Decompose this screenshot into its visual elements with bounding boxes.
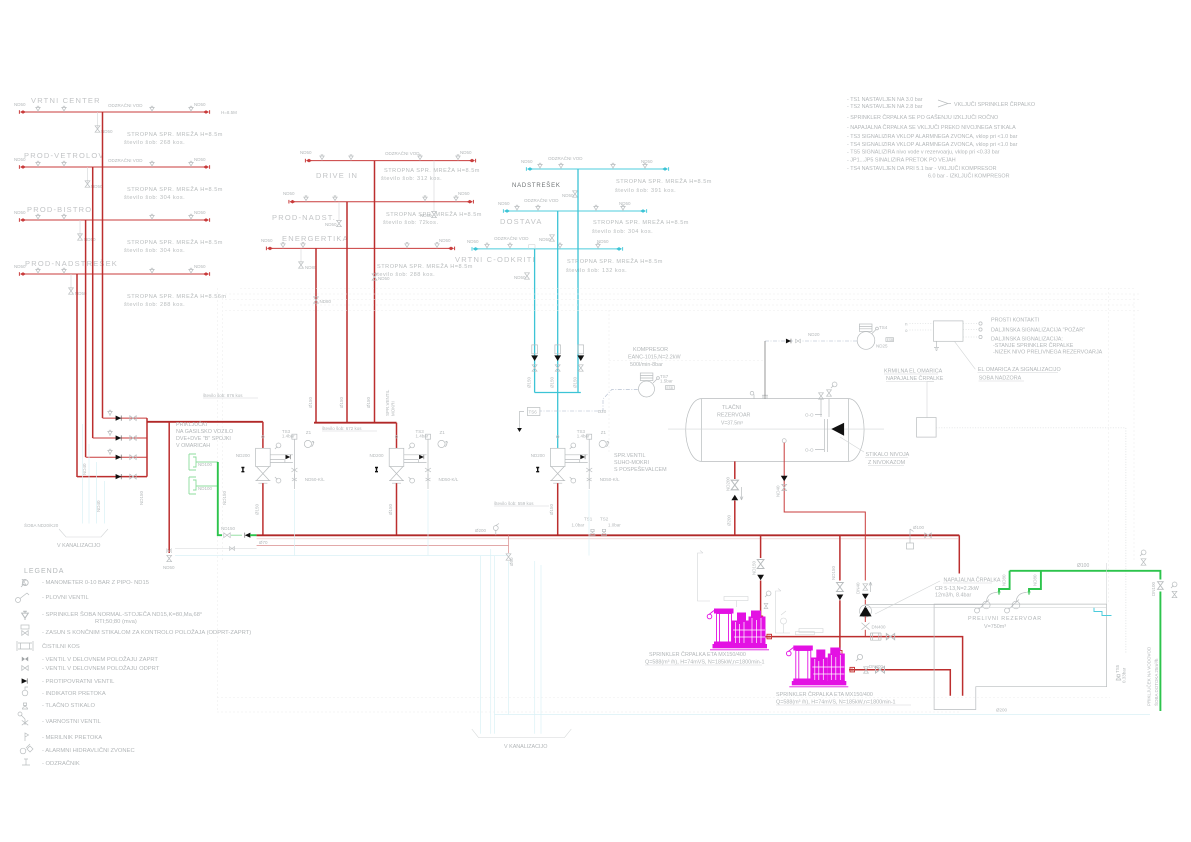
svg-text:ND100: ND100 (198, 462, 213, 467)
svg-text:TS4: TS4 (879, 325, 888, 330)
svg-text:PRELIVNI REZERVOAR: PRELIVNI REZERVOAR (968, 616, 1042, 622)
svg-text:DN400: DN400 (872, 625, 887, 630)
svg-text:ND40: ND40 (82, 463, 87, 475)
svg-text:- TS5 SIGNALIZIRA nivo vode v: - TS5 SIGNALIZIRA nivo vode v rezervoarj… (847, 150, 1000, 156)
svg-text:LEGENDA: LEGENDA (24, 568, 64, 575)
svg-text:število šob: 132 kos.: število šob: 132 kos. (566, 268, 627, 274)
svg-text:število šob: 268 kos.: število šob: 268 kos. (124, 140, 185, 146)
svg-text:ND80: ND80 (1002, 574, 1007, 586)
svg-text:ND150: ND150 (222, 490, 227, 505)
svg-text:DRIVE IN: DRIVE IN (316, 171, 358, 180)
svg-text:ND50: ND50 (521, 159, 533, 164)
svg-text:KOMPRESOR: KOMPRESOR (633, 347, 668, 353)
svg-text:ENERGERTIKA: ENERGERTIKA (282, 234, 349, 243)
svg-text:ND150: ND150 (831, 565, 836, 580)
svg-text:1.5bar: 1.5bar (660, 379, 673, 384)
svg-text:- VENTIL V DELOVNEM POLOŽAJU Z: - VENTIL V DELOVNEM POLOŽAJU ZAPRT (42, 655, 158, 663)
svg-text:RTI;50;80 (mva): RTI;50;80 (mva) (95, 619, 137, 625)
svg-text:ND50: ND50 (619, 201, 631, 206)
svg-text:Ø150: Ø150 (366, 396, 371, 408)
svg-text:DALJINSKA SIGNALIZACIJA "POŽAR: DALJINSKA SIGNALIZACIJA "POŽAR" (991, 326, 1085, 334)
svg-text:TS1: TS1 (584, 517, 593, 522)
svg-text:SPRINKLER ČRPALKA ETA MX150/40: SPRINKLER ČRPALKA ETA MX150/400 (649, 651, 746, 658)
svg-text:Ø100: Ø100 (913, 525, 925, 530)
svg-text:Ø150: Ø150 (573, 376, 578, 388)
svg-text:STROPNA SPR. MREŽA H=8.5m: STROPNA SPR. MREŽA H=8.5m (593, 218, 689, 226)
svg-text:STROPNA SPR. MREŽA H=8.5m: STROPNA SPR. MREŽA H=8.5m (616, 177, 712, 185)
svg-text:Ø150: Ø150 (388, 503, 393, 515)
svg-text:število šob: 672 kos: število šob: 672 kos (322, 426, 362, 431)
svg-text:- TLAČNO STIKALO: - TLAČNO STIKALO (42, 702, 96, 709)
svg-text:- TS4 NASTAVLJEN DA PRI 5.1 ba: - TS4 NASTAVLJEN DA PRI 5.1 bar - VKLJUČ… (847, 165, 997, 172)
svg-text:SUHO-MOKRI: SUHO-MOKRI (614, 460, 649, 466)
svg-text:ND50: ND50 (14, 157, 26, 162)
svg-text:H=8.5M: H=8.5M (221, 110, 237, 115)
svg-text:Ø200: Ø200 (727, 514, 732, 526)
svg-text:ODZRAČNI VOD: ODZRAČNI VOD (108, 157, 143, 163)
svg-text:S POSPEŠEVALCEM: S POSPEŠEVALCEM (614, 466, 667, 473)
svg-text:- SPRINKLER ČRPALKA SE PO GAŠE: - SPRINKLER ČRPALKA SE PO GAŠENJU IZKLJU… (847, 114, 998, 121)
svg-text:Ø150: Ø150 (549, 503, 554, 515)
svg-text:ND50: ND50 (14, 210, 26, 215)
svg-text:Ø100: Ø100 (1077, 563, 1089, 569)
svg-text:ODZRAČNI VOD: ODZRAČNI VOD (524, 197, 559, 203)
svg-text:ND40: ND40 (96, 500, 101, 512)
svg-text:- NAPAJALNA ČRPALKA SE VKLJUČI: - NAPAJALNA ČRPALKA SE VKLJUČI PREKO NIV… (847, 124, 1016, 131)
svg-text:- ODZRAČNIK: - ODZRAČNIK (42, 760, 80, 767)
svg-text:število šob: 304 kos.: število šob: 304 kos. (124, 195, 185, 201)
svg-text:V=37.5m³: V=37.5m³ (721, 421, 743, 427)
svg-text:[M]: [M] (166, 548, 172, 553)
svg-text:6.0 bar - IZKLJUČI KOMPRESOR: 6.0 bar - IZKLJUČI KOMPRESOR (928, 173, 1010, 180)
svg-text:NA GASILSKO VOZILO: NA GASILSKO VOZILO (176, 429, 233, 435)
svg-text:- MERILNIK PRETOKA: - MERILNIK PRETOKA (42, 735, 102, 741)
svg-text:CR 5-13,N=2.2kW: CR 5-13,N=2.2kW (935, 586, 980, 592)
svg-text:ND50: ND50 (562, 193, 574, 198)
svg-text:ND50: ND50 (14, 264, 26, 269)
svg-text:PRIKLJUČEK NA VODOVOD: PRIKLJUČEK NA VODOVOD (1146, 646, 1152, 706)
svg-text:SPRINKLER ČRPALKA ETA MX150/40: SPRINKLER ČRPALKA ETA MX150/400 (776, 691, 873, 698)
svg-text:NAPAJALNE ČRPALKE: NAPAJALNE ČRPALKE (886, 375, 944, 382)
svg-text:ND50: ND50 (14, 102, 26, 107)
svg-text:O-O: O-O (805, 413, 814, 418)
svg-text:Q=588(m³ /h), H=74mVS, N=185: Q=588(m³ /h), H=74mVS, N=185kW,n=1800min… (776, 700, 896, 706)
svg-text:- MANOMETER 0-10 BAR Z PIPO- N: - MANOMETER 0-10 BAR Z PIPO- ND15 (42, 580, 149, 586)
svg-text:STROPNA SPR. MREŽA H=8.5m: STROPNA SPR. MREŽA H=8.5m (386, 210, 482, 218)
svg-text:- ZASUN S KONČNIM STIKALOM ZA: - ZASUN S KONČNIM STIKALOM ZA KONTROLO P… (42, 628, 251, 636)
svg-text:V OMARICAH: V OMARICAH (176, 443, 210, 449)
svg-text:-NIZEK NIVO PRELIVNEGA REZERVO: -NIZEK NIVO PRELIVNEGA REZERVOARJA (993, 350, 1103, 356)
svg-text:1.0bar: 1.0bar (608, 523, 621, 528)
svg-text:Ø50: Ø50 (509, 557, 514, 566)
svg-text:ODZRAČNI VOD: ODZRAČNI VOD (385, 150, 420, 156)
svg-text:- VENTIL V DELOVNEM POLOŽAJU O: - VENTIL V DELOVNEM POLOŽAJU ODPRT (42, 664, 160, 672)
svg-text:PROD-NADSTREŠEK: PROD-NADSTREŠEK (25, 259, 118, 268)
svg-text:Ø150: Ø150 (308, 396, 313, 408)
svg-text:ND80: ND80 (1033, 574, 1038, 586)
svg-text:PROD-NADST.: PROD-NADST. (272, 213, 336, 222)
svg-text:ND50: ND50 (194, 102, 206, 107)
svg-text:- TS1 NASTAVLJEN NA 3.0 bar: - TS1 NASTAVLJEN NA 3.0 bar (847, 97, 923, 103)
svg-text:-STANJE SPRINKLER ČRPALKE: -STANJE SPRINKLER ČRPALKE (993, 342, 1074, 349)
svg-text:V KANALIZACIJO: V KANALIZACIJO (504, 744, 547, 750)
svg-text:ND25: ND25 (876, 344, 888, 349)
svg-text:PROSTI KONTAKTI: PROSTI KONTAKTI (991, 318, 1039, 324)
svg-text:ND50: ND50 (163, 565, 175, 570)
svg-text:DOSTAVA: DOSTAVA (500, 217, 543, 226)
svg-text:ND50: ND50 (467, 239, 479, 244)
svg-text:ND50: ND50 (498, 201, 510, 206)
svg-text:- PROTIPOVRATNI VENTIL: - PROTIPOVRATNI VENTIL (42, 679, 115, 685)
svg-text:VRTNI CENTER: VRTNI CENTER (31, 96, 101, 105)
svg-text:ŠOBA DOTOKA 25m³/h: ŠOBA DOTOKA 25m³/h (1153, 658, 1159, 706)
svg-text:ND50: ND50 (283, 191, 295, 196)
svg-text:REZERVOAR: REZERVOAR (717, 413, 751, 419)
svg-text:- VARNOSTNI VENTIL: - VARNOSTNI VENTIL (42, 719, 102, 725)
svg-text:- INDIKATOR PRETOKA: - INDIKATOR PRETOKA (42, 691, 106, 697)
svg-text:VRTNI C-ODKRITI: VRTNI C-ODKRITI (455, 255, 536, 264)
svg-text:število šob: 391 kos.: število šob: 391 kos. (615, 188, 676, 194)
svg-text:Ø200: Ø200 (996, 708, 1008, 713)
svg-text:ND100: ND100 (198, 486, 213, 491)
svg-text:ESB: ESB (887, 338, 893, 342)
svg-text:ŠOBA ND20/K20: ŠOBA ND20/K20 (24, 522, 59, 528)
svg-text:- TS2 NASTAVLJEN NA 2.8 bar: - TS2 NASTAVLJEN NA 2.8 bar (847, 104, 923, 110)
svg-text:KRMILNA EL OMARICA: KRMILNA EL OMARICA (884, 369, 943, 375)
svg-text:DVE+DVE "B" SPOJKI: DVE+DVE "B" SPOJKI (176, 436, 231, 442)
svg-text:500l/min-8bar: 500l/min-8bar (630, 362, 663, 368)
svg-text:STROPNA SPR. MREŽA H=8.5m: STROPNA SPR. MREŽA H=8.5m (567, 257, 663, 265)
svg-text:ND150: ND150 (139, 490, 144, 505)
svg-text:ND50: ND50 (641, 159, 653, 164)
svg-text:DALJINSKA SIGNALIZACIJA:: DALJINSKA SIGNALIZACIJA: (991, 337, 1063, 343)
svg-text:ND50: ND50 (597, 239, 609, 244)
svg-text:- JP1...JP5 SINALIZIRA PRETOK: - JP1...JP5 SINALIZIRA PRETOK PO VEJAH (847, 158, 956, 164)
svg-text:ODZRAČNI VOD: ODZRAČNI VOD (494, 235, 529, 241)
svg-text:O-O: O-O (805, 448, 814, 453)
svg-text:NAPAJALNA ČRPALKA: NAPAJALNA ČRPALKA (944, 577, 1001, 584)
svg-text:Ø150: Ø150 (550, 376, 555, 388)
svg-text:ND50: ND50 (325, 222, 337, 227)
svg-text:Ø150: Ø150 (339, 396, 344, 408)
svg-text:1.0bar: 1.0bar (572, 523, 585, 528)
svg-text:TLAČNI: TLAČNI (722, 404, 741, 411)
svg-text:ND150: ND150 (752, 560, 757, 575)
svg-text:VKLJUČI SPRINKLER ČRPALKO: VKLJUČI SPRINKLER ČRPALKO (954, 101, 1035, 108)
svg-text:SOBA NADZORA: SOBA NADZORA (979, 376, 1022, 382)
svg-text:STROPNA SPR. MREŽA H=8.5m: STROPNA SPR. MREŽA H=8.5m (127, 130, 223, 138)
svg-text:STROPNA SPR. MREŽA H=8.5m: STROPNA SPR. MREŽA H=8.5m (127, 185, 223, 193)
svg-text:ND50: ND50 (539, 237, 551, 242)
svg-text:- TS3 SIGNALIZIRA VKLOP ALARMN: - TS3 SIGNALIZIRA VKLOP ALARMNEGA ZVONCA… (847, 134, 1018, 140)
svg-text:12m3/h, 8.4bar: 12m3/h, 8.4bar (935, 593, 971, 599)
svg-text:TS6: TS6 (529, 410, 538, 415)
svg-text:ND80: ND80 (305, 265, 317, 270)
svg-text:ODZRAČNI VOD: ODZRAČNI VOD (548, 155, 583, 161)
svg-text:ND40: ND40 (776, 485, 781, 497)
svg-text:ND50: ND50 (261, 238, 273, 243)
svg-text:ND50: ND50 (194, 157, 206, 162)
svg-text:število šob: 304 kos.: število šob: 304 kos. (124, 248, 185, 254)
svg-text:ODZRAČNI VOD: ODZRAČNI VOD (108, 102, 143, 108)
svg-text:SPR.VENTIL: SPR.VENTIL (614, 453, 645, 459)
svg-text:število šob: 876 kos: število šob: 876 kos (203, 393, 243, 398)
svg-text:PRIKLJUČKI: PRIKLJUČKI (176, 421, 207, 428)
svg-text:- SPRINKLER ŠOBA NORMAL-STOJEČ: - SPRINKLER ŠOBA NORMAL-STOJEČA ND15,K=8… (42, 611, 202, 618)
svg-text:število šob: 288 kos.: število šob: 288 kos. (124, 302, 185, 308)
svg-text:število šob: 304 kos.: število šob: 304 kos. (592, 229, 653, 235)
svg-text:SPR.VENTIL: SPR.VENTIL (385, 389, 390, 416)
svg-text:Q=588(m³ /h), H=74mVS, N=185: Q=588(m³ /h), H=74mVS, N=185kW,n=1800min… (645, 660, 765, 666)
svg-text:število šob: 312 kos.: število šob: 312 kos. (381, 176, 442, 182)
svg-text:STROPNA SPR. MREŽA H=8.56m: STROPNA SPR. MREŽA H=8.56m (127, 292, 227, 300)
svg-text:Ø150: Ø150 (527, 376, 532, 388)
svg-text:število šob: 559 kos: število šob: 559 kos (494, 501, 534, 506)
svg-text:DN40: DN40 (856, 582, 861, 594)
svg-text:STROPNA SPR. MREŽA H=8.5m: STROPNA SPR. MREŽA H=8.5m (127, 238, 223, 246)
svg-text:ND50: ND50 (300, 150, 312, 155)
svg-text:STROPNA SPR. MREŽA H=8.5m: STROPNA SPR. MREŽA H=8.5m (384, 166, 480, 174)
svg-text:ČISTILNI KOS: ČISTILNI KOS (42, 643, 80, 650)
svg-text:V=750m³: V=750m³ (984, 624, 1006, 630)
svg-text:ND150: ND150 (221, 526, 236, 531)
svg-text:ND50: ND50 (378, 276, 390, 281)
svg-text:EL OMARICA ZA SIGNALIZACIJO: EL OMARICA ZA SIGNALIZACIJO (978, 367, 1061, 373)
svg-text:ND50: ND50 (439, 238, 451, 243)
svg-text:ND50: ND50 (460, 150, 472, 155)
svg-text:ND50: ND50 (514, 275, 526, 280)
svg-text:ND20: ND20 (808, 332, 820, 337)
svg-text:DN100: DN100 (1151, 581, 1156, 596)
svg-text:ESB: ESB (667, 386, 673, 390)
svg-text:Ø200: Ø200 (475, 528, 487, 533)
svg-text:ND200: ND200 (726, 476, 731, 491)
svg-text:MOKRI: MOKRI (391, 401, 396, 416)
svg-text:ND50: ND50 (458, 191, 470, 196)
svg-text:TS5: TS5 (1115, 664, 1120, 673)
svg-text:Ø150: Ø150 (255, 503, 260, 515)
svg-text:- PLOVNI VENTIL: - PLOVNI VENTIL (42, 595, 89, 601)
svg-text:STIKALO NIVOJA: STIKALO NIVOJA (866, 452, 910, 458)
svg-text:- TS4 SIGNALIZIRA VKLOP ALARMN: - TS4 SIGNALIZIRA VKLOP ALARMNEGA ZVONCA… (847, 142, 1018, 148)
svg-text:D20: D20 (598, 409, 607, 414)
svg-text:0.33bar: 0.33bar (1122, 667, 1127, 683)
svg-text:ND50: ND50 (194, 210, 206, 215)
svg-text:PROD-VETROLOV: PROD-VETROLOV (24, 151, 105, 160)
svg-text:- ALARMNI HIDRAVLIČNI ZVONEC: - ALARMNI HIDRAVLIČNI ZVONEC (42, 747, 135, 754)
svg-text:V KANALIZACIJO: V KANALIZACIJO (57, 543, 100, 549)
svg-text:TS2: TS2 (600, 517, 609, 522)
svg-text:PROD-BISTRO: PROD-BISTRO (27, 205, 92, 214)
svg-text:Ø70: Ø70 (259, 540, 268, 545)
svg-text:ND50: ND50 (194, 264, 206, 269)
svg-text:število šob: 72kos.: število šob: 72kos. (383, 220, 439, 226)
svg-text:NADSTREŠEK: NADSTREŠEK (512, 182, 561, 189)
svg-text:Z NIVOKAZOM: Z NIVOKAZOM (868, 460, 906, 466)
svg-text:EANC-1015,N=2.2kW: EANC-1015,N=2.2kW (628, 355, 681, 361)
